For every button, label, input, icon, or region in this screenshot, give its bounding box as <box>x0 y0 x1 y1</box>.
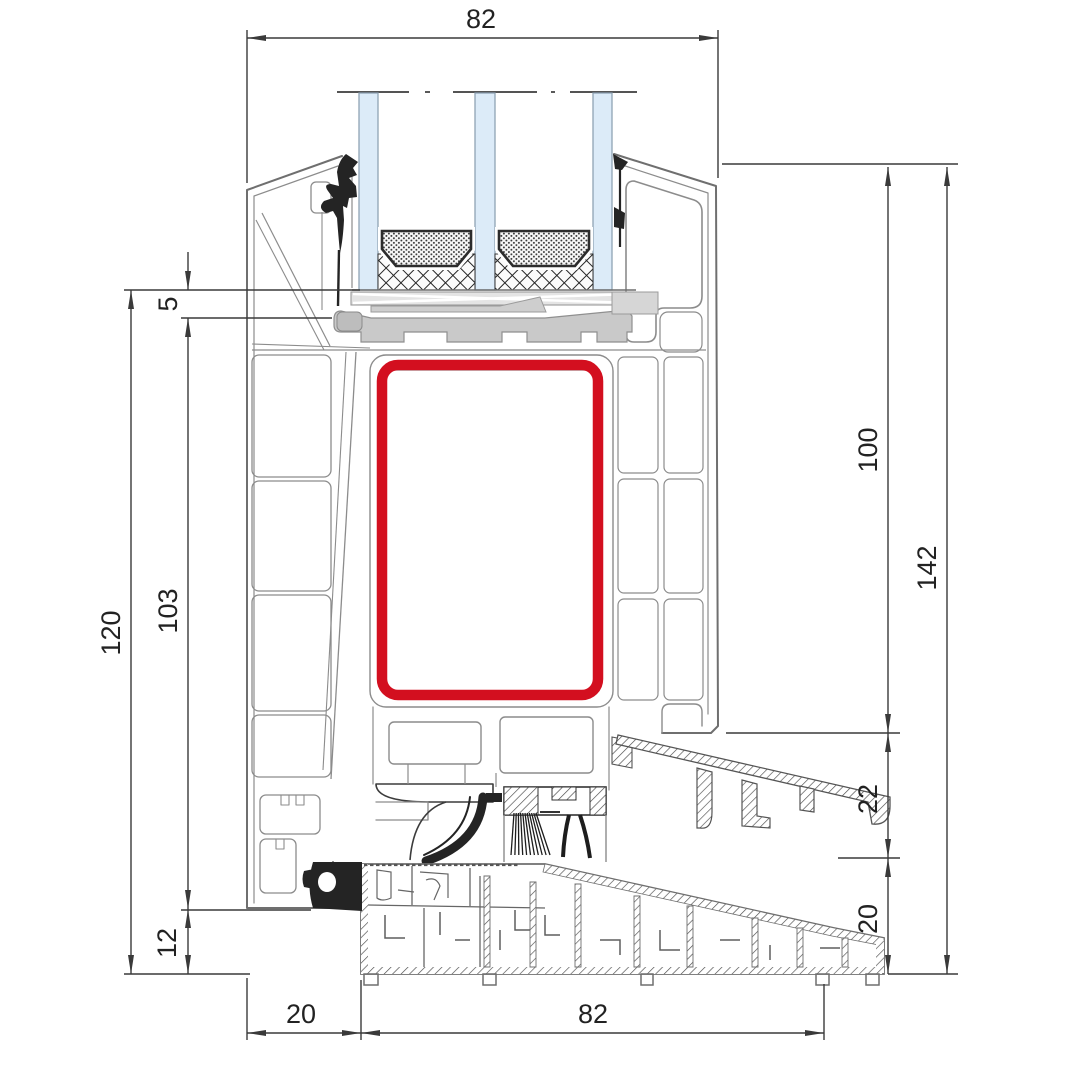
svg-text:103: 103 <box>153 588 183 633</box>
svg-text:12: 12 <box>152 928 182 958</box>
svg-text:20: 20 <box>853 904 883 934</box>
svg-text:120: 120 <box>96 610 126 655</box>
svg-text:100: 100 <box>853 427 883 472</box>
svg-text:142: 142 <box>912 545 942 590</box>
svg-text:5: 5 <box>153 296 183 311</box>
svg-text:20: 20 <box>286 999 316 1029</box>
svg-text:82: 82 <box>466 4 496 34</box>
svg-text:82: 82 <box>578 999 608 1029</box>
svg-text:22: 22 <box>853 784 883 814</box>
